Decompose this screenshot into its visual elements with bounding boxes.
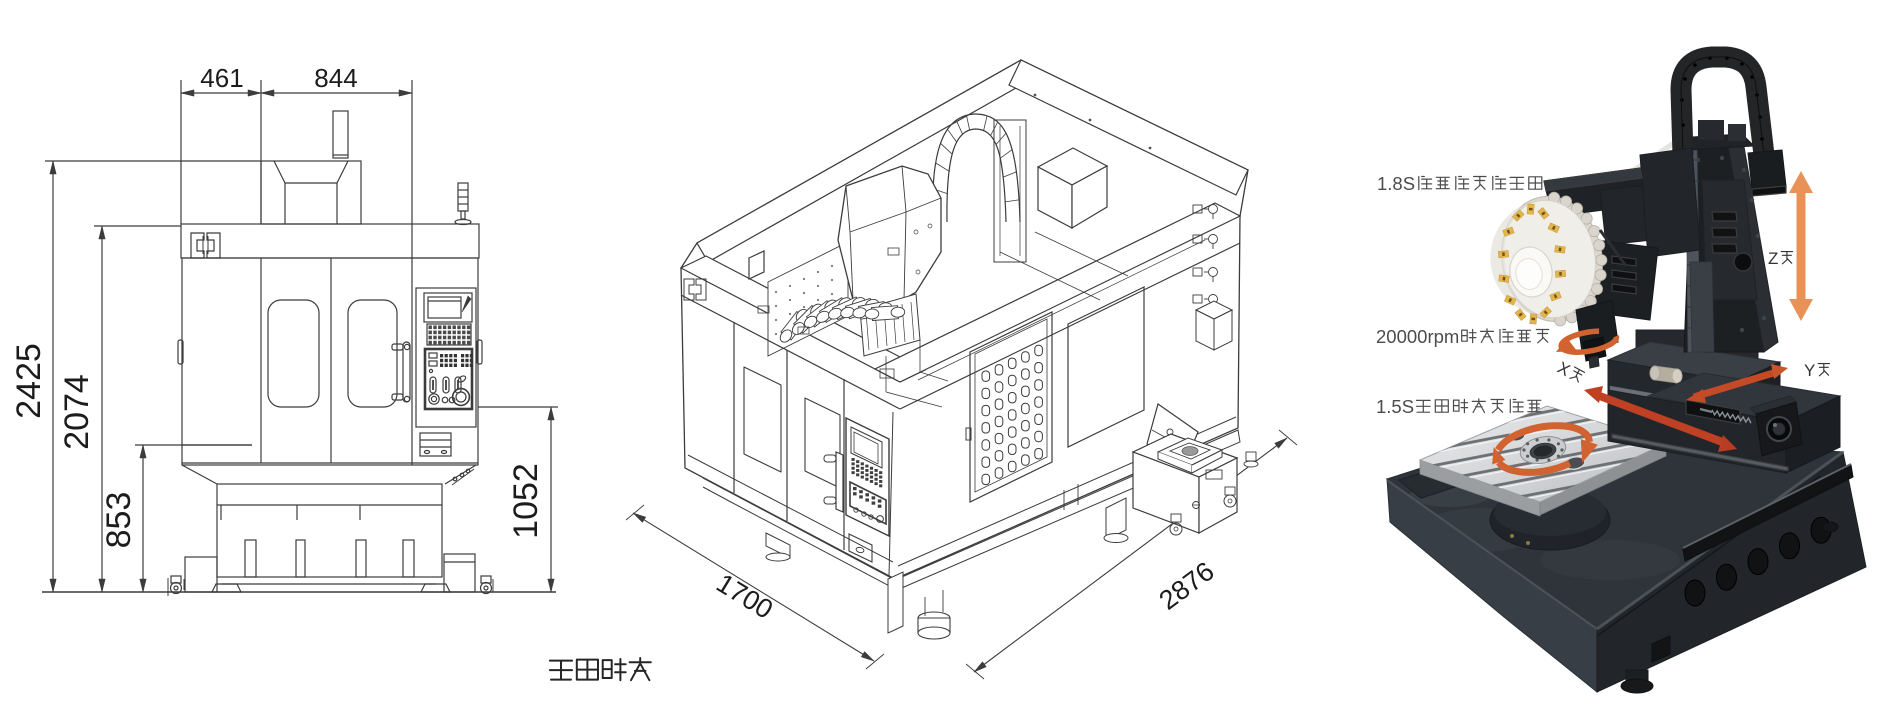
svg-text:1052: 1052	[507, 463, 545, 539]
svg-text:20000rpm: 20000rpm	[1376, 326, 1459, 347]
svg-text:2425: 2425	[10, 343, 48, 419]
svg-text:844: 844	[314, 63, 357, 93]
svg-text:Z: Z	[1768, 249, 1778, 268]
svg-text:853: 853	[100, 492, 138, 549]
svg-text:461: 461	[200, 63, 243, 93]
svg-text:1.5S: 1.5S	[1376, 396, 1414, 417]
svg-text:1.8S: 1.8S	[1377, 173, 1415, 194]
svg-text:Y: Y	[1804, 361, 1815, 380]
svg-text:2074: 2074	[58, 374, 96, 450]
